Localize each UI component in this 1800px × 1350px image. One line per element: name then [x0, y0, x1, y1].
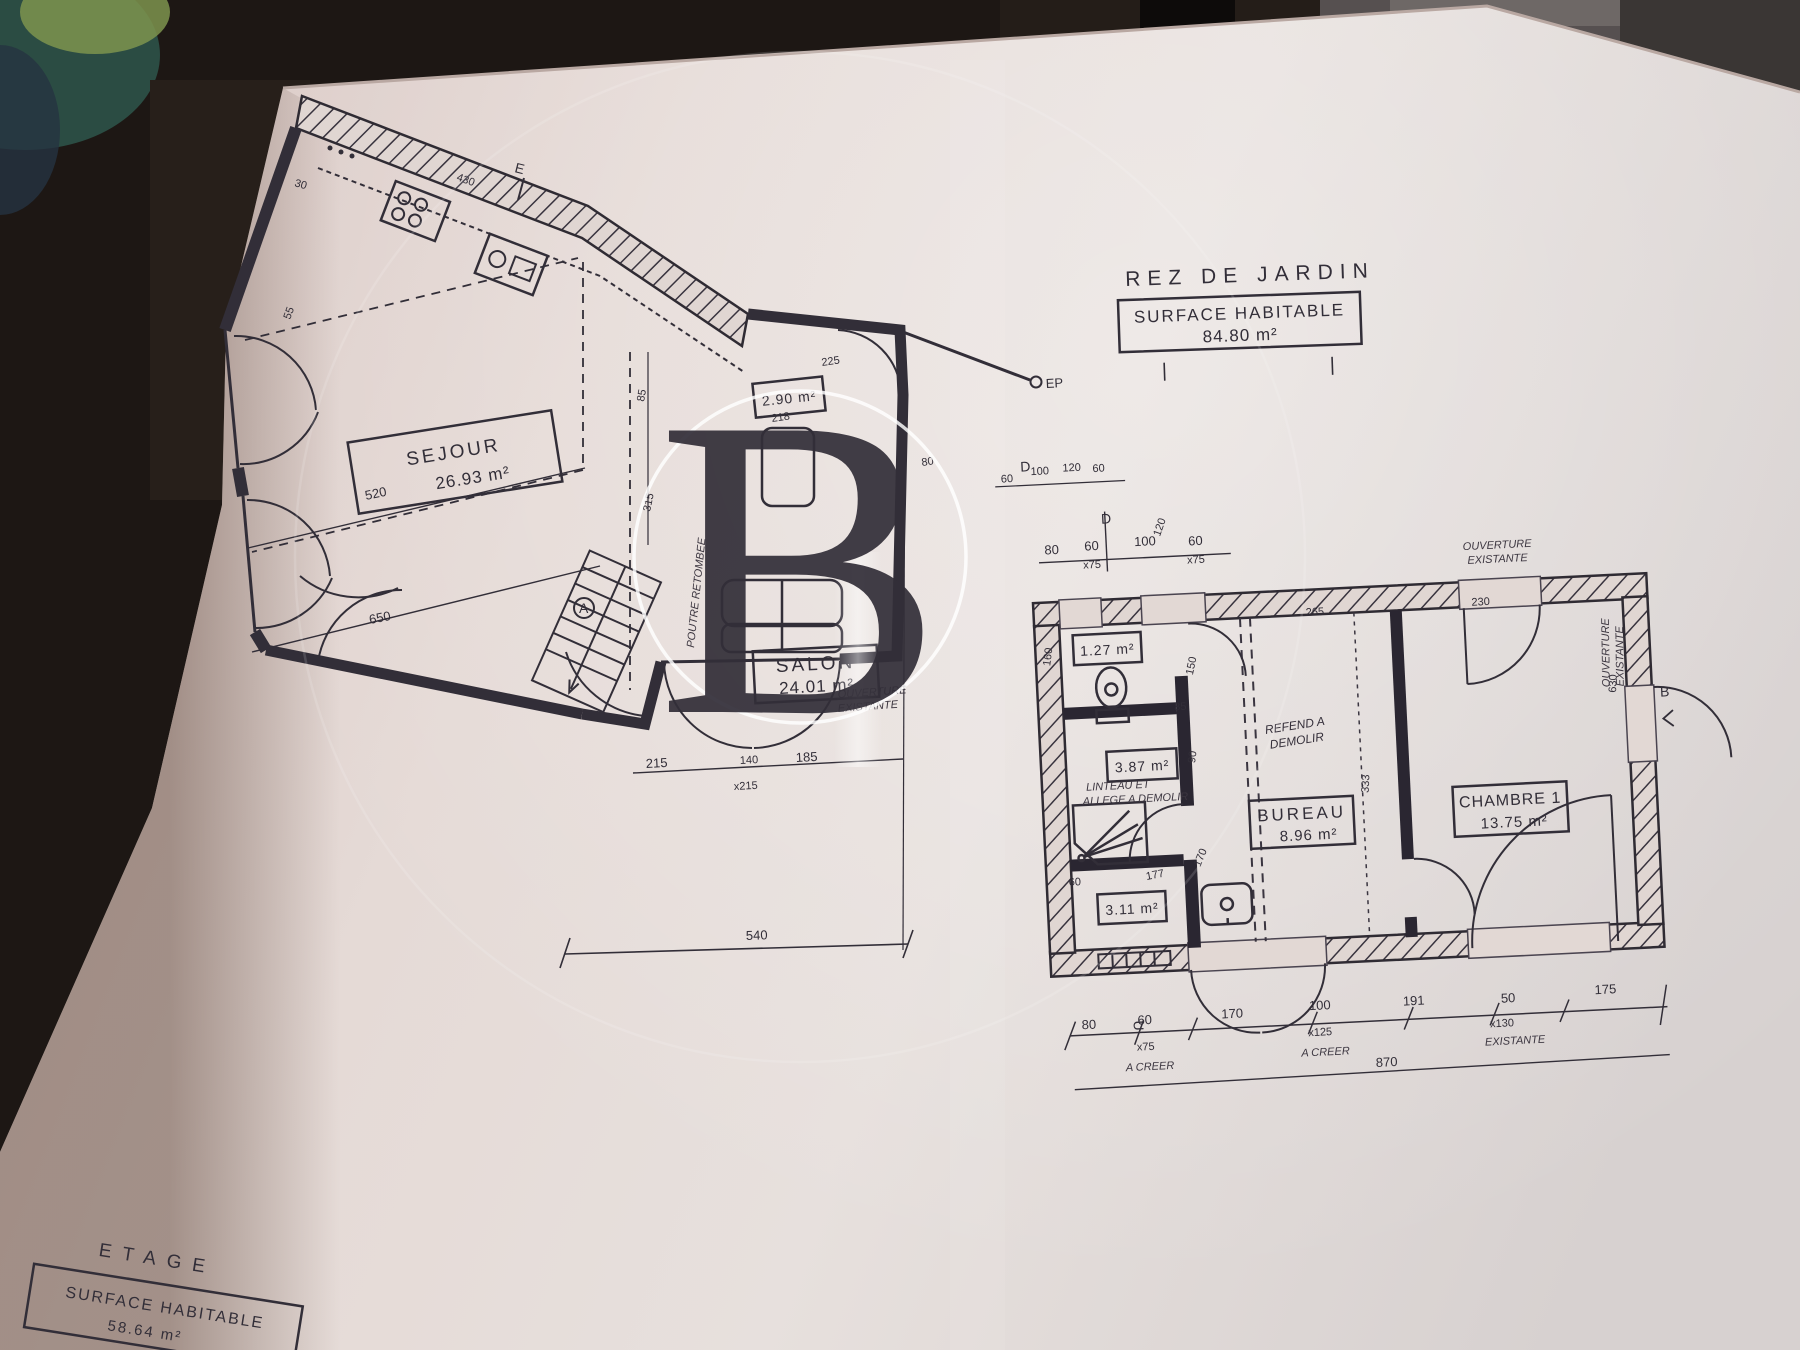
- marker-d2: D: [1101, 510, 1112, 526]
- svg-text:x75: x75: [1187, 554, 1205, 567]
- room-area-cellier: 3.11 m²: [1105, 899, 1159, 918]
- room-area-bureau: 8.96 m²: [1279, 826, 1338, 846]
- svg-text:170: 170: [1221, 1005, 1243, 1021]
- svg-text:60: 60: [1188, 533, 1203, 549]
- photo-of-floor-plan: EP A: [0, 0, 1800, 1350]
- marker-ep: EP: [1045, 375, 1063, 391]
- svg-text:85: 85: [635, 388, 649, 402]
- paper-crease: [950, 60, 1005, 1350]
- svg-text:x130: x130: [1490, 1017, 1514, 1030]
- svg-text:191: 191: [1402, 993, 1424, 1009]
- svg-text:540: 540: [746, 927, 768, 943]
- svg-text:100: 100: [1030, 465, 1049, 478]
- svg-text:230: 230: [1471, 596, 1490, 609]
- french-door-opening: [1188, 936, 1327, 972]
- surface-value: 84.80 m²: [1202, 325, 1278, 347]
- svg-text:60: 60: [1092, 463, 1105, 476]
- watermark-letter: B: [657, 330, 944, 806]
- room-area-shower: 3.87 m²: [1114, 757, 1169, 776]
- a-creer-1: A CREER: [1125, 1060, 1175, 1074]
- svg-text:60: 60: [1001, 473, 1014, 486]
- svg-text:630: 630: [1607, 674, 1620, 693]
- a-creer-2: A CREER: [1300, 1045, 1350, 1059]
- svg-text:870: 870: [1375, 1054, 1397, 1070]
- marker-a: A: [579, 600, 589, 616]
- svg-text:x75: x75: [1137, 1041, 1155, 1054]
- svg-text:120: 120: [1062, 462, 1081, 475]
- svg-text:160: 160: [1041, 647, 1055, 667]
- svg-text:60: 60: [1084, 538, 1099, 554]
- window-opening: [1059, 598, 1102, 629]
- svg-text:85: 85: [1174, 701, 1187, 714]
- svg-text:x75: x75: [1083, 559, 1101, 572]
- window-opening: [1141, 593, 1206, 625]
- svg-text:x125: x125: [1308, 1026, 1332, 1039]
- svg-text:60: 60: [1068, 876, 1081, 889]
- svg-text:265: 265: [1305, 606, 1324, 619]
- room-area-chambre: 13.75 m²: [1480, 812, 1548, 832]
- svg-text:50: 50: [1500, 990, 1515, 1006]
- room-area-wc: 1.27 m²: [1080, 640, 1135, 659]
- svg-text:333: 333: [1360, 774, 1373, 793]
- svg-text:175: 175: [1594, 981, 1616, 997]
- marker-d1: D: [1020, 458, 1031, 474]
- svg-text:80: 80: [1044, 542, 1059, 558]
- door-opening-right: [1625, 685, 1658, 762]
- svg-text:100: 100: [1134, 533, 1156, 549]
- floor-plan-scene: EP A: [0, 0, 1800, 1350]
- svg-text:60: 60: [1137, 1012, 1152, 1028]
- svg-text:90: 90: [1186, 750, 1199, 764]
- marker-b: B: [1660, 683, 1670, 699]
- svg-text:80: 80: [1081, 1017, 1096, 1033]
- door-opening-chambre: [1467, 922, 1610, 958]
- svg-text:100: 100: [1309, 997, 1331, 1013]
